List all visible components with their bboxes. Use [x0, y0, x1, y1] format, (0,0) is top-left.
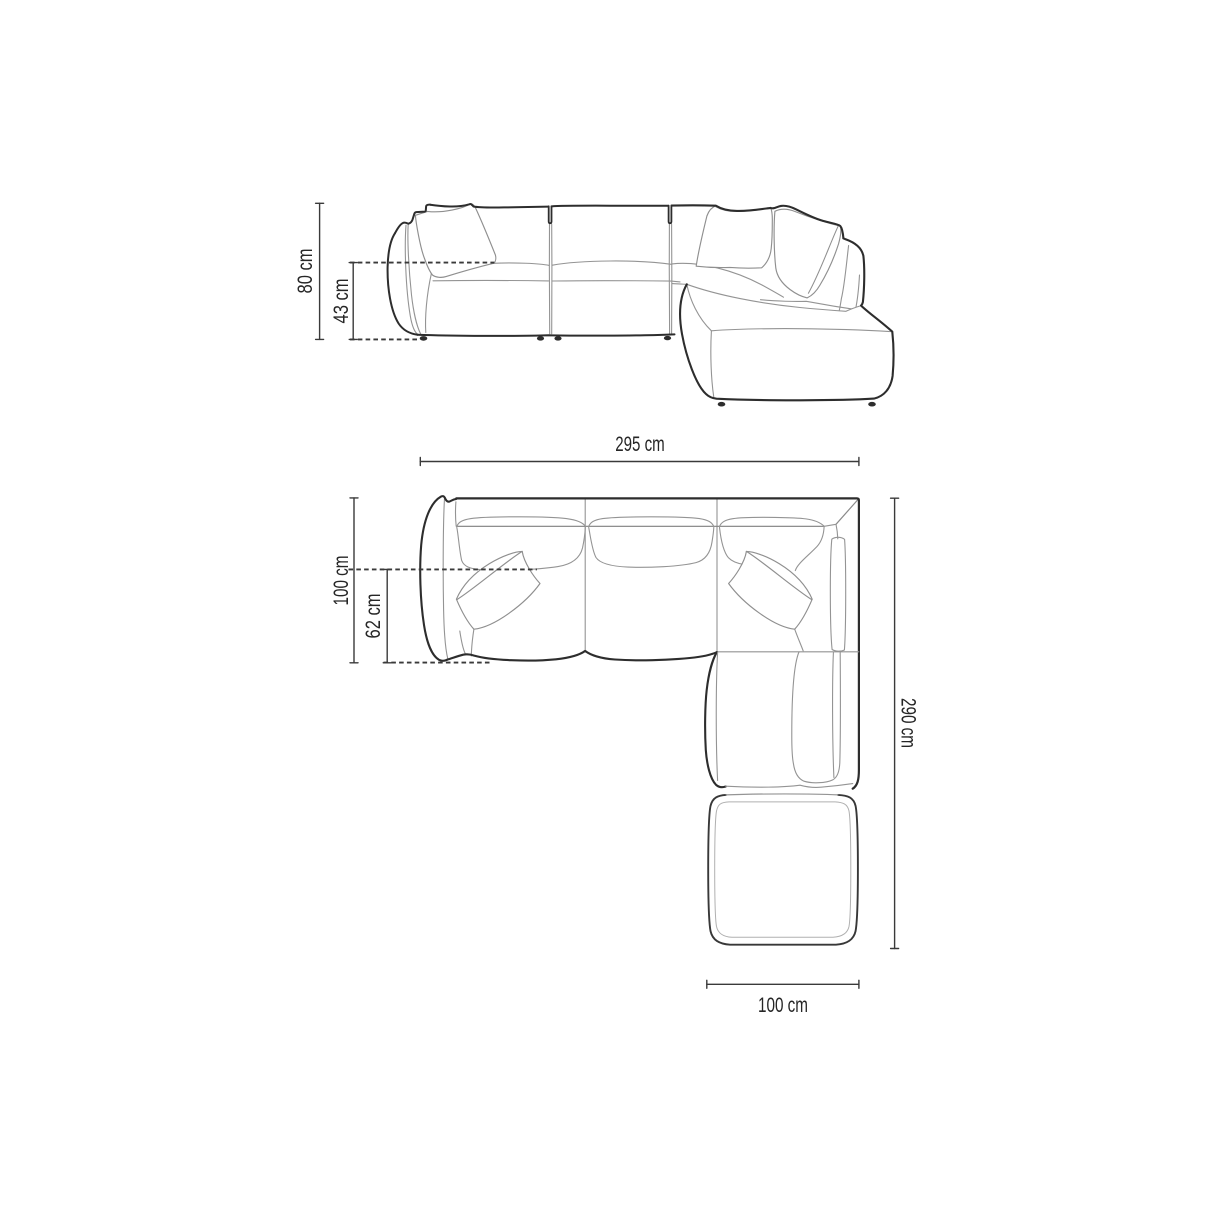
- svg-text:295 cm: 295 cm: [615, 433, 665, 456]
- svg-text:43 cm: 43 cm: [330, 279, 353, 324]
- svg-text:100 cm: 100 cm: [330, 556, 353, 606]
- svg-text:80 cm: 80 cm: [294, 249, 317, 294]
- svg-text:100 cm: 100 cm: [758, 994, 808, 1017]
- svg-text:62 cm: 62 cm: [362, 594, 385, 639]
- svg-text:290 cm: 290 cm: [897, 698, 920, 748]
